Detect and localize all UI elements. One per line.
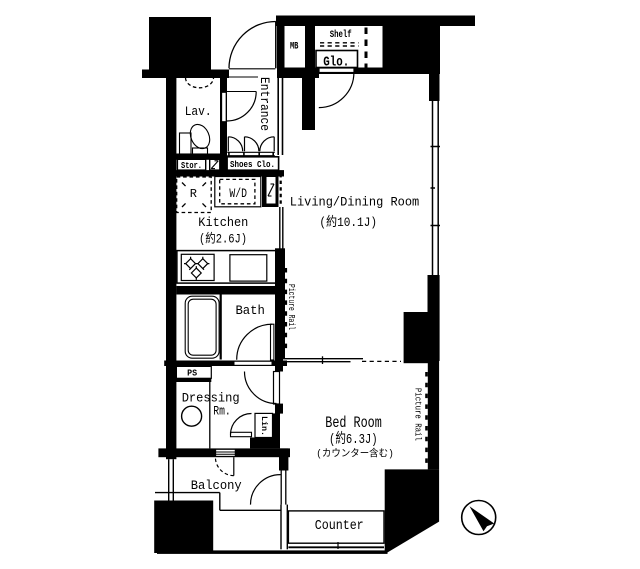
svg-text:(カウンター含む): (カウンター含む) [316,447,394,461]
svg-text:Shoes Clo.: Shoes Clo. [230,159,275,170]
svg-text:Bed Room: Bed Room [325,414,382,432]
svg-text:Dressing: Dressing [182,392,240,406]
svg-text:Counter: Counter [315,518,364,534]
svg-text:Kitchen: Kitchen [198,215,248,230]
svg-text:Living/Dining Room: Living/Dining Room [290,195,420,210]
svg-text:Rm.: Rm. [213,405,231,419]
svg-text:Bath: Bath [235,303,265,318]
svg-text:Stor.: Stor. [181,161,202,171]
svg-text:MB: MB [290,42,299,53]
svg-text:(約6.3J): (約6.3J) [329,431,378,448]
svg-text:Lin.: Lin. [259,416,268,436]
svg-text:Lav.: Lav. [185,105,212,119]
svg-text:Balcony: Balcony [191,478,242,493]
svg-text:Entrance: Entrance [257,77,272,131]
svg-text:Shelf: Shelf [330,29,352,41]
svg-text:Picture Rail: Picture Rail [286,284,296,330]
svg-text:PS: PS [187,369,198,379]
svg-text:(約2.6J): (約2.6J) [199,231,247,247]
svg-text:R: R [190,187,197,201]
svg-text:Picture Rail: Picture Rail [413,388,424,441]
svg-text:W/D: W/D [229,187,247,201]
svg-text:(約10.1J): (約10.1J) [319,215,377,230]
